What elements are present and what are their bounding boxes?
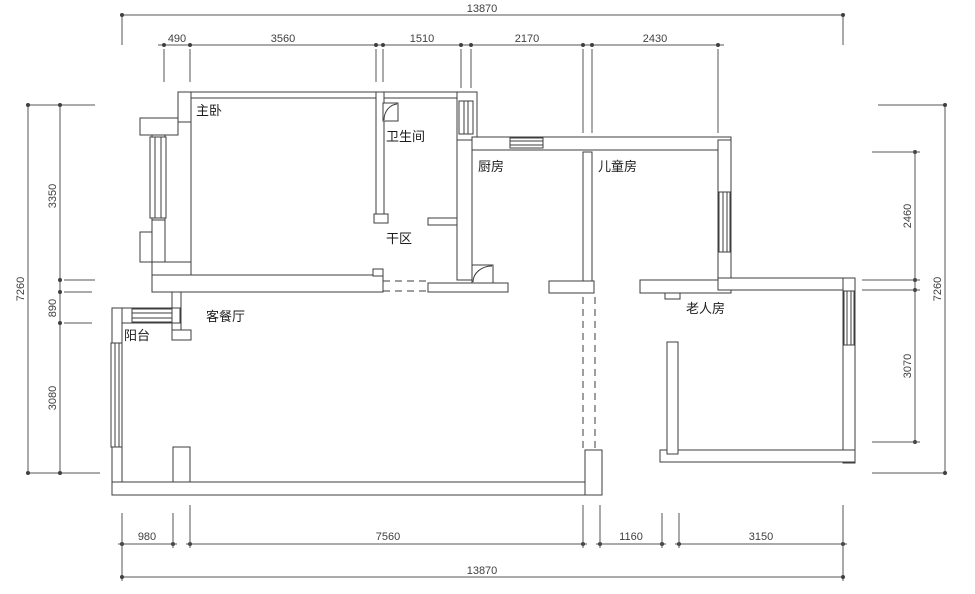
wall-segment xyxy=(373,269,383,276)
window-icon xyxy=(719,192,730,252)
dim-right-seg-3070: 3070 xyxy=(902,354,914,378)
wall-segment xyxy=(152,220,165,268)
wall-segment xyxy=(428,283,508,292)
window-icon xyxy=(510,138,543,148)
dim-top-seg-2430: 2430 xyxy=(643,33,667,45)
room-label-bathroom: 卫生间 xyxy=(386,129,425,144)
window-icon xyxy=(150,137,166,218)
dim-left-seg-890: 890 xyxy=(47,299,59,317)
wall-segment xyxy=(640,280,731,293)
wall-segment xyxy=(428,218,457,225)
wall-layer xyxy=(112,92,855,495)
window-icon xyxy=(132,309,172,322)
dim-tick xyxy=(120,13,124,17)
dim-bottom-total: 13870 xyxy=(467,565,498,577)
wall-segment xyxy=(112,482,602,495)
wall-segment xyxy=(173,447,190,482)
dim-bottom-seg-7560: 7560 xyxy=(376,531,400,543)
room-label-living-dining: 客餐厅 xyxy=(206,309,245,324)
floor-plan-canvas: 13870 490 3560 1510 2170 2430 7260 xyxy=(0,0,975,594)
window-icon xyxy=(844,291,854,345)
wall-segment xyxy=(140,232,152,262)
window-icon xyxy=(459,101,473,134)
dim-top-seg-2170: 2170 xyxy=(515,33,539,45)
dim-tick xyxy=(841,13,845,17)
wall-segment xyxy=(140,118,178,135)
wall-segment xyxy=(457,140,472,280)
wall-segment xyxy=(660,450,855,462)
dim-top-seg-1510: 1510 xyxy=(410,33,434,45)
wall-segment xyxy=(374,214,388,223)
dim-top-seg-490: 490 xyxy=(168,33,186,45)
wall-segment xyxy=(152,275,383,292)
room-label-balcony: 阳台 xyxy=(124,328,150,343)
wall-segment xyxy=(718,278,855,290)
wall-segment xyxy=(172,330,191,340)
dim-top-seg-3560: 3560 xyxy=(271,33,295,45)
wall-segment xyxy=(665,293,680,299)
room-label-children-room: 儿童房 xyxy=(598,159,637,174)
room-label-kitchen: 厨房 xyxy=(478,159,504,174)
room-label-master-bedroom: 主卧 xyxy=(196,103,222,118)
opening-dashed-lines xyxy=(383,281,595,450)
door-swing-icon xyxy=(472,265,493,283)
room-label-dry-area: 干区 xyxy=(386,231,412,246)
dim-right-total: 7260 xyxy=(932,277,944,301)
dim-right-seg-2460: 2460 xyxy=(902,204,914,228)
wall-segment xyxy=(178,92,477,98)
wall-segment xyxy=(667,342,678,454)
window-icon xyxy=(111,343,122,447)
wall-segment xyxy=(152,262,191,275)
door-swing-icon xyxy=(383,103,398,121)
wall-segment xyxy=(585,450,602,495)
dim-bottom-seg-1160: 1160 xyxy=(619,531,643,543)
wall-segment xyxy=(583,152,592,283)
dim-left-total: 7260 xyxy=(15,277,27,301)
dim-top-total: 13870 xyxy=(467,3,498,15)
wall-segment xyxy=(178,92,191,122)
room-label-elderly-room: 老人房 xyxy=(686,301,725,316)
dim-bottom-seg-980: 980 xyxy=(138,531,156,543)
dim-left-seg-3350: 3350 xyxy=(47,184,59,208)
wall-segment xyxy=(549,281,594,293)
floor-plan-svg: 13870 490 3560 1510 2170 2430 7260 xyxy=(0,0,975,594)
dim-left-seg-3080: 3080 xyxy=(47,386,59,410)
dim-bottom-seg-3150: 3150 xyxy=(749,531,773,543)
